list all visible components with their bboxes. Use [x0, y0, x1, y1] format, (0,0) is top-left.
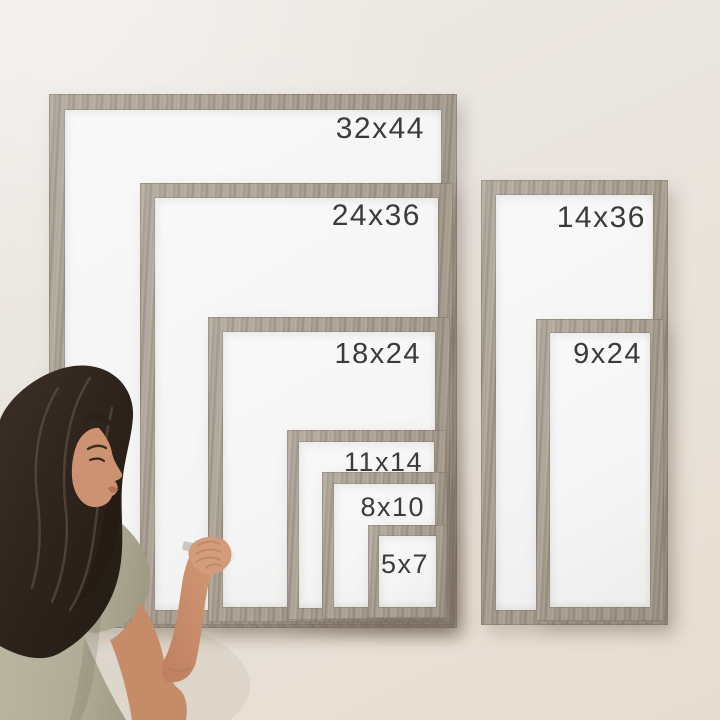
size-label-24x36: 24x36	[332, 201, 421, 231]
whiteboard-5x7: 5x7	[379, 536, 436, 607]
frame-9x24: 9x24	[536, 319, 664, 621]
size-label-8x10: 8x10	[360, 494, 425, 521]
size-label-14x36: 14x36	[557, 203, 646, 233]
size-label-9x24: 9x24	[573, 340, 642, 369]
size-label-32x44: 32x44	[336, 114, 425, 144]
whiteboard-9x24: 9x24	[550, 333, 650, 607]
size-label-5x7: 5x7	[381, 551, 429, 578]
product-photo-scene: 32x44 24x36 18x24 11x14 8x10 5x7 14x36 9…	[0, 0, 720, 720]
frame-5x7: 5x7	[368, 525, 447, 618]
woman-writing-illustration	[0, 350, 270, 720]
size-label-18x24: 18x24	[334, 340, 421, 369]
